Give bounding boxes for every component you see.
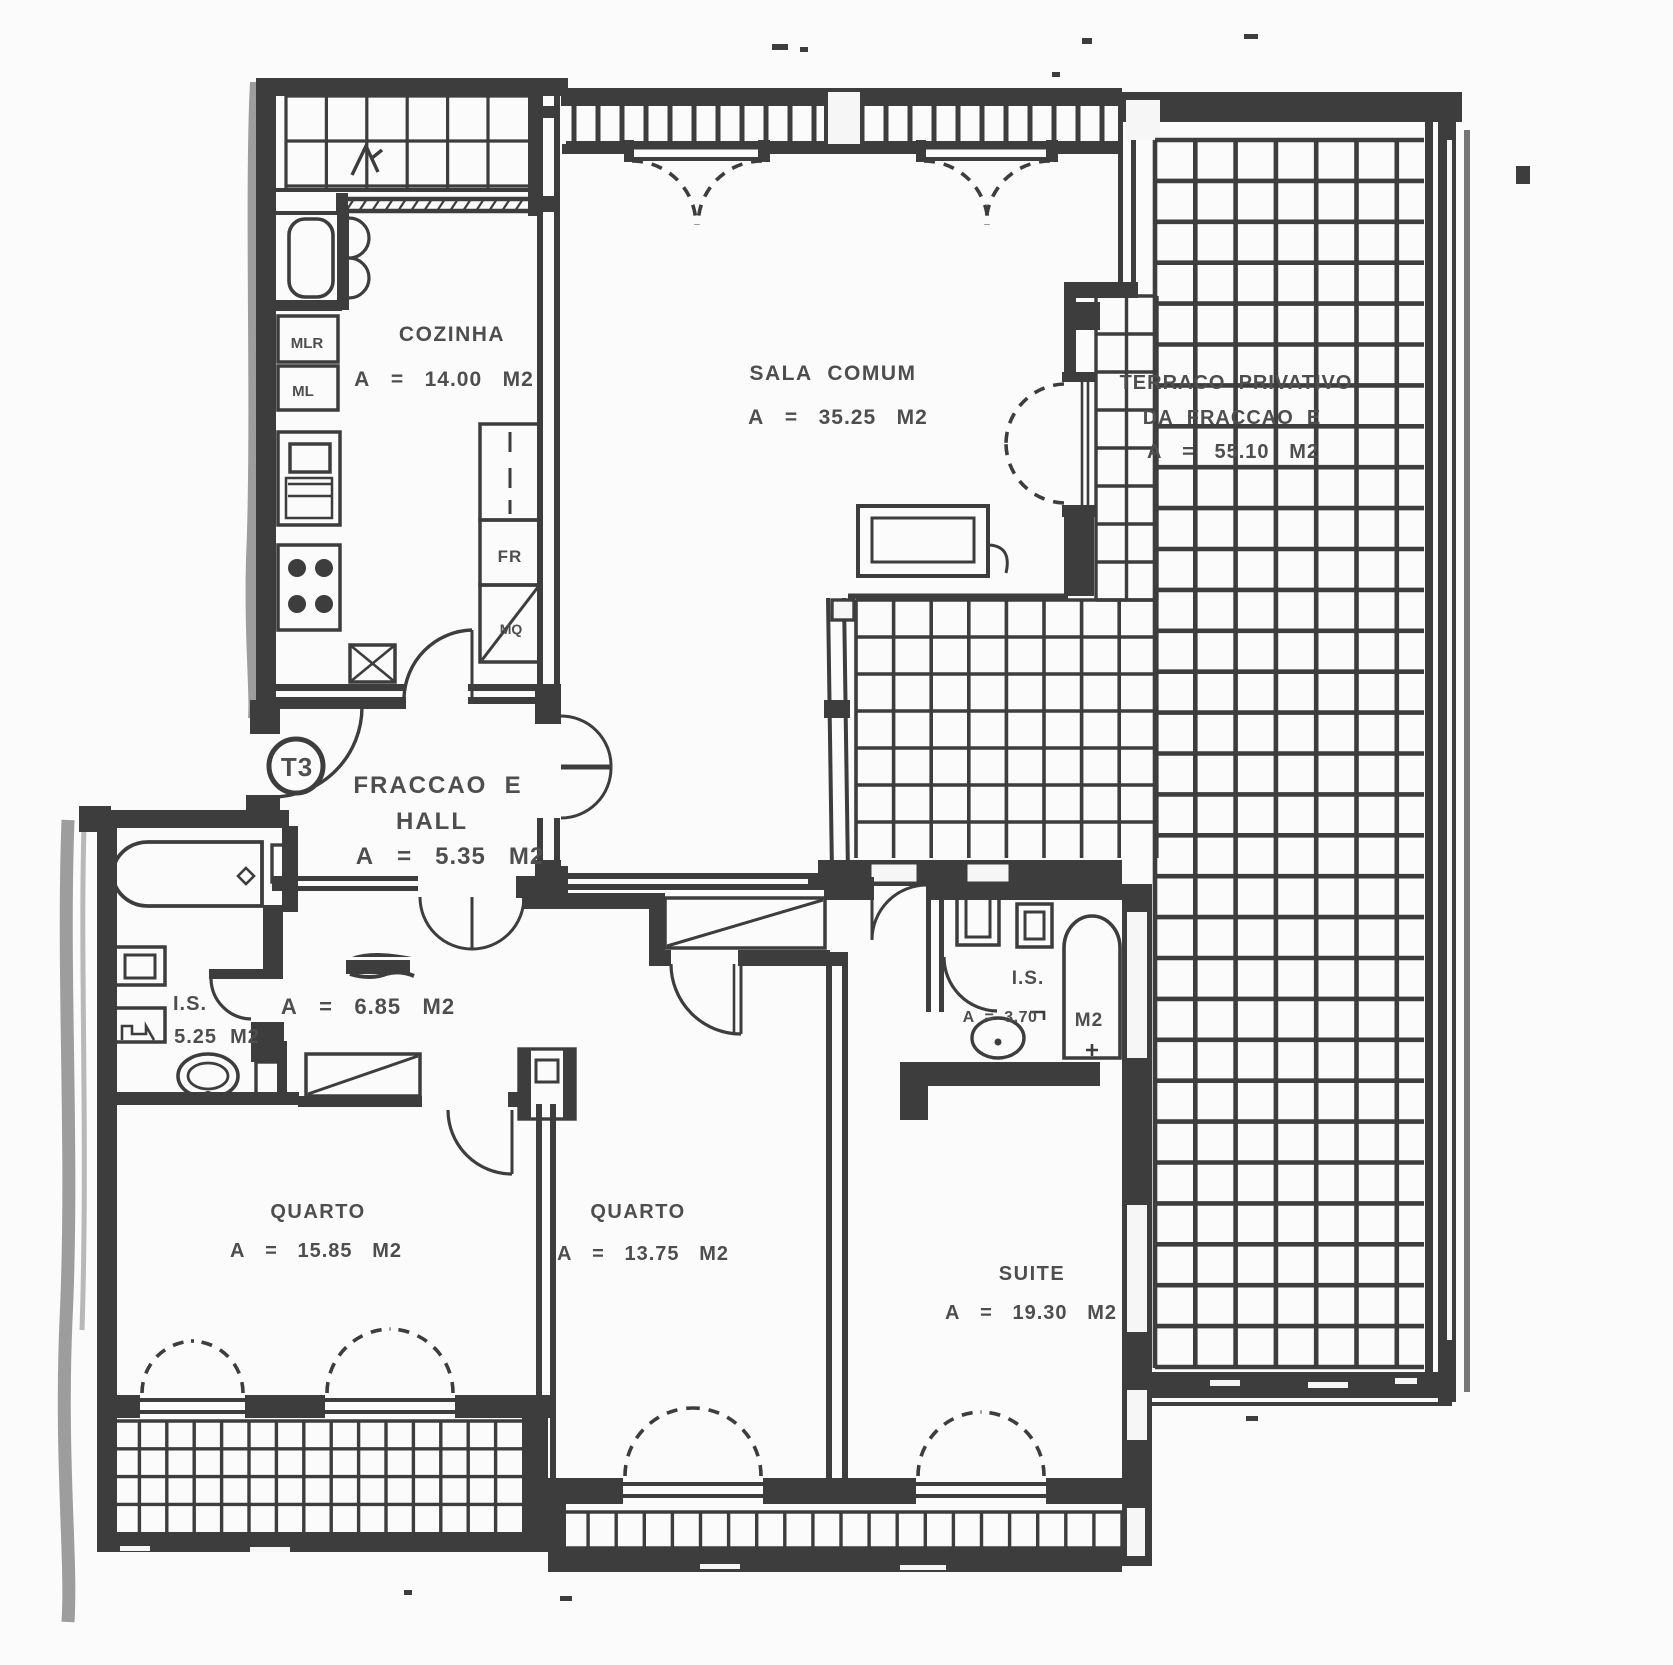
svg-text:A = 35.25 M2: A = 35.25 M2 — [748, 406, 928, 429]
svg-text:FR: FR — [498, 547, 523, 566]
svg-text:HALL: HALL — [396, 808, 468, 835]
svg-text:A = 14.00 M2: A = 14.00 M2 — [354, 368, 534, 391]
svg-text:ML: ML — [292, 383, 314, 400]
svg-text:5.25 M2: 5.25 M2 — [174, 1026, 260, 1048]
svg-text:SALA COMUM: SALA COMUM — [750, 362, 917, 385]
svg-text:A = 3.70: A = 3.70 — [963, 1009, 1038, 1026]
svg-text:A = 55.10 M2: A = 55.10 M2 — [1147, 441, 1319, 463]
svg-text:MQ: MQ — [500, 621, 523, 637]
svg-text:A = 15.85 M2: A = 15.85 M2 — [230, 1240, 402, 1262]
svg-text:I.S.: I.S. — [1012, 968, 1045, 989]
svg-text:SUITE: SUITE — [999, 1263, 1065, 1285]
svg-text:TERRACO PRIVATIVO: TERRACO PRIVATIVO — [1120, 372, 1353, 394]
svg-text:MLR: MLR — [291, 335, 324, 352]
svg-text:QUARTO: QUARTO — [590, 1201, 685, 1223]
svg-text:DA FRACCAO E: DA FRACCAO E — [1143, 407, 1321, 429]
svg-text:QUARTO: QUARTO — [270, 1201, 365, 1223]
svg-text:I.S.: I.S. — [173, 993, 207, 1015]
svg-text:A = 19.30 M2: A = 19.30 M2 — [945, 1302, 1117, 1324]
svg-text:A = 6.85 M2: A = 6.85 M2 — [281, 994, 455, 1019]
svg-text:COZINHA: COZINHA — [399, 323, 505, 346]
svg-text:A = 5.35 M2: A = 5.35 M2 — [356, 843, 544, 870]
svg-text:A = 13.75 M2: A = 13.75 M2 — [557, 1243, 729, 1265]
svg-text:T3: T3 — [281, 752, 313, 782]
svg-text:M2: M2 — [1075, 1010, 1103, 1031]
svg-text:FRACCAO E: FRACCAO E — [353, 772, 522, 799]
